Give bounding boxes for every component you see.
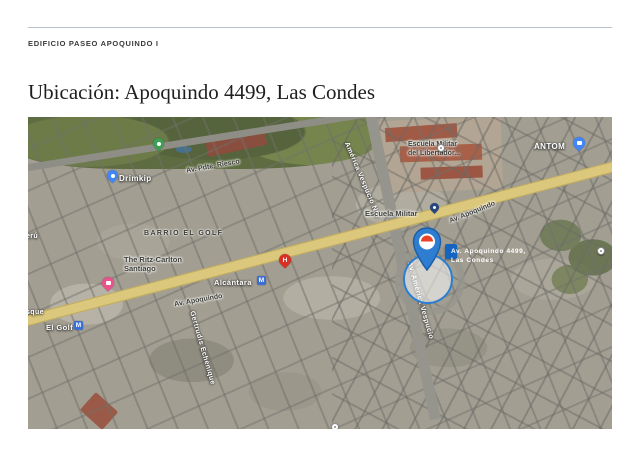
hospital-pin[interactable]: H bbox=[277, 252, 294, 269]
poi-circle-bottom-partial[interactable] bbox=[331, 423, 339, 429]
metro-icon-alcantara[interactable]: M bbox=[257, 276, 266, 285]
hospital-h-icon: H bbox=[279, 254, 291, 266]
top-divider bbox=[28, 27, 612, 28]
street-label-bosque-partial: sque bbox=[28, 309, 44, 316]
poi-label-drimkip[interactable]: Drimkip bbox=[119, 174, 152, 183]
shop-icon bbox=[107, 170, 118, 181]
school-poi-icon[interactable] bbox=[437, 144, 445, 152]
street-label-peru-partial: erú bbox=[28, 233, 38, 240]
location-tooltip[interactable]: Av. Apoquindo 4499, Las Condes bbox=[445, 244, 457, 259]
station-label-el-golf[interactable]: El Golf bbox=[46, 323, 73, 332]
shop-icon bbox=[573, 137, 585, 149]
page-title: Ubicación: Apoquindo 4499, Las Condes bbox=[28, 80, 375, 105]
bed-icon bbox=[102, 277, 114, 289]
station-label-escuela-militar[interactable]: Escuela Militar bbox=[365, 209, 418, 218]
antom-pin[interactable] bbox=[571, 135, 588, 152]
metro-dot-icon bbox=[430, 203, 439, 212]
metro-icon-el-golf[interactable]: M bbox=[74, 321, 83, 330]
satellite-map[interactable]: Av. Pdte. Riesco Av. Apoquindo Av. Apoqu… bbox=[28, 117, 612, 429]
main-location-pin[interactable] bbox=[412, 227, 442, 271]
document-page: EDIFICIO PASEO APOQUINDO I Ubicación: Ap… bbox=[0, 0, 640, 465]
poi-label-antom[interactable]: ANTOM bbox=[534, 142, 565, 151]
hotel-pin[interactable] bbox=[100, 275, 117, 292]
street-grid-east bbox=[332, 117, 612, 429]
neighborhood-label: BARRIO EL GOLF bbox=[144, 230, 223, 237]
park-pin[interactable] bbox=[151, 136, 167, 152]
poi-circle-east[interactable] bbox=[597, 247, 605, 255]
poi-label-ritz-carlton[interactable]: The Ritz-Carlton Santiago bbox=[72, 255, 176, 264]
metro-pin-escuela-militar[interactable] bbox=[428, 201, 441, 214]
station-label-alcantara[interactable]: Alcántara bbox=[214, 278, 252, 287]
drimkip-pin[interactable] bbox=[105, 168, 121, 184]
project-header: EDIFICIO PASEO APOQUINDO I bbox=[28, 39, 159, 48]
park-icon bbox=[153, 138, 164, 149]
